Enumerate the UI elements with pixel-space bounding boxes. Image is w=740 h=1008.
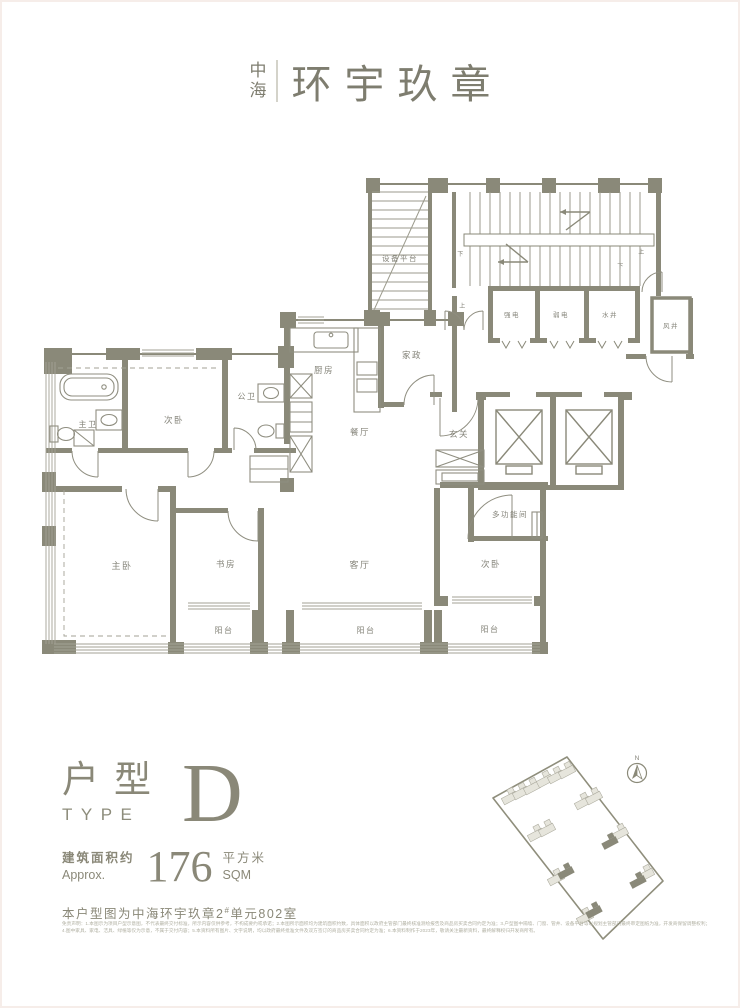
site-plan: N: [485, 748, 683, 946]
structural-piers: [42, 178, 662, 654]
room-label-master-bedroom: 主卧: [111, 560, 132, 571]
public-bath-toilet-icon: [258, 424, 284, 438]
room-label-living: 客厅: [349, 559, 370, 570]
walls: [46, 180, 694, 654]
elevator-2: [566, 410, 612, 474]
elevator-1: [496, 410, 542, 474]
master-bath-shower-icon: [74, 430, 94, 446]
stair-label-up-2: 上: [638, 248, 646, 256]
room-label-public-bath: 公卫: [238, 392, 257, 401]
unit-caption-post: 单元802室: [230, 907, 297, 921]
brand-logo: 中 海 环宇玖章: [250, 52, 491, 110]
kitchen-counter-sink-icon: [290, 328, 358, 352]
stair-label-up-1: 上: [459, 302, 467, 310]
dashed-lines: [58, 368, 220, 636]
public-bath-vanity-icon: [258, 384, 284, 402]
room-label-balcony-3: 阳台: [481, 624, 500, 634]
room-label-bedroom2: 次卧: [164, 415, 184, 425]
bathtub-icon: [60, 374, 118, 400]
project-name: 环宇玖章: [292, 52, 504, 110]
type-letter: D: [182, 760, 243, 829]
room-label-bedroom3: 次卧: [481, 559, 501, 569]
master-bath-vanity-icon: [96, 410, 122, 430]
stair-label-down-1: 下: [457, 251, 465, 258]
disclaimer-line-2: 4.图中家具、家电、洁具、绿植等仅为示意，不属于交付内容；5.本资料所有图片、文…: [62, 928, 733, 935]
room-label-water-shaft: 水井: [602, 310, 618, 319]
shaft-louvres: [502, 341, 622, 348]
title-block: 户型 TYPE D 建筑面积约 Approx. 176 平方米 SQM 本户型图…: [62, 760, 298, 922]
room-label-master-bath: 主卫: [79, 419, 98, 429]
room-label-air-shaft: 风井: [663, 321, 679, 330]
site-buildings: [499, 761, 655, 925]
brand-char-bottom: 海: [250, 81, 267, 101]
room-label-balcony-1: 阳台: [215, 625, 234, 635]
room-label-equipment-platform: 设备平台: [382, 253, 418, 263]
area-unit-cn: 平方米: [223, 850, 267, 867]
room-label-study: 书房: [216, 559, 236, 569]
logo-divider: [277, 60, 278, 102]
foyer-shoe-cabinet-icon: [436, 450, 484, 484]
unit-caption-pre: 本户型图为中海环宇玖章2: [62, 907, 224, 921]
disclaimer-line-1: 免责声明：1.本图示为项目户型示意图，不代表最终交付标准，所示内容仅供参考，不构…: [62, 921, 733, 928]
area-value: 176: [147, 845, 213, 889]
type-label-en: TYPE: [62, 805, 166, 825]
room-label-strong-electric: 强电: [504, 310, 520, 319]
floor-plan: 设备平台 强电 弱电 水井 风井 下 上 上 下 厨房 家政 餐厅 玄关 主卫 …: [40, 175, 700, 675]
room-label-dining: 餐厅: [350, 427, 370, 437]
master-bath-toilet-icon: [50, 426, 75, 442]
stairs: [372, 192, 654, 310]
page: 中 海 环宇玖章: [0, 0, 740, 1008]
area-unit-en: SQM: [223, 867, 267, 884]
room-label-housekeeping: 家政: [402, 350, 422, 360]
unit-caption: 本户型图为中海环宇玖章2#单元802室: [62, 903, 298, 922]
disclaimer: 免责声明：1.本图示为项目户型示意图，不代表最终交付标准，所示内容仅供参考，不构…: [62, 921, 733, 936]
stair-label-down-2: 下: [617, 263, 625, 270]
room-label-weak-electric: 弱电: [553, 310, 569, 319]
site-boundary: [493, 757, 663, 939]
kitchen-cabinet-icons: [290, 374, 312, 472]
north-label: N: [635, 755, 640, 762]
type-label-cn: 户型: [62, 760, 166, 803]
brand-name-stacked: 中 海: [250, 61, 267, 101]
room-label-kitchen: 厨房: [314, 365, 334, 375]
north-compass-icon: N: [628, 755, 647, 783]
room-label-foyer: 玄关: [449, 429, 469, 439]
room-label-multi-function: 多功能间: [492, 509, 528, 519]
brand-char-top: 中: [250, 61, 267, 81]
area-label-en: Approx.: [62, 867, 135, 884]
area-label-cn: 建筑面积约: [62, 850, 135, 867]
room-label-balcony-2: 阳台: [357, 625, 376, 635]
